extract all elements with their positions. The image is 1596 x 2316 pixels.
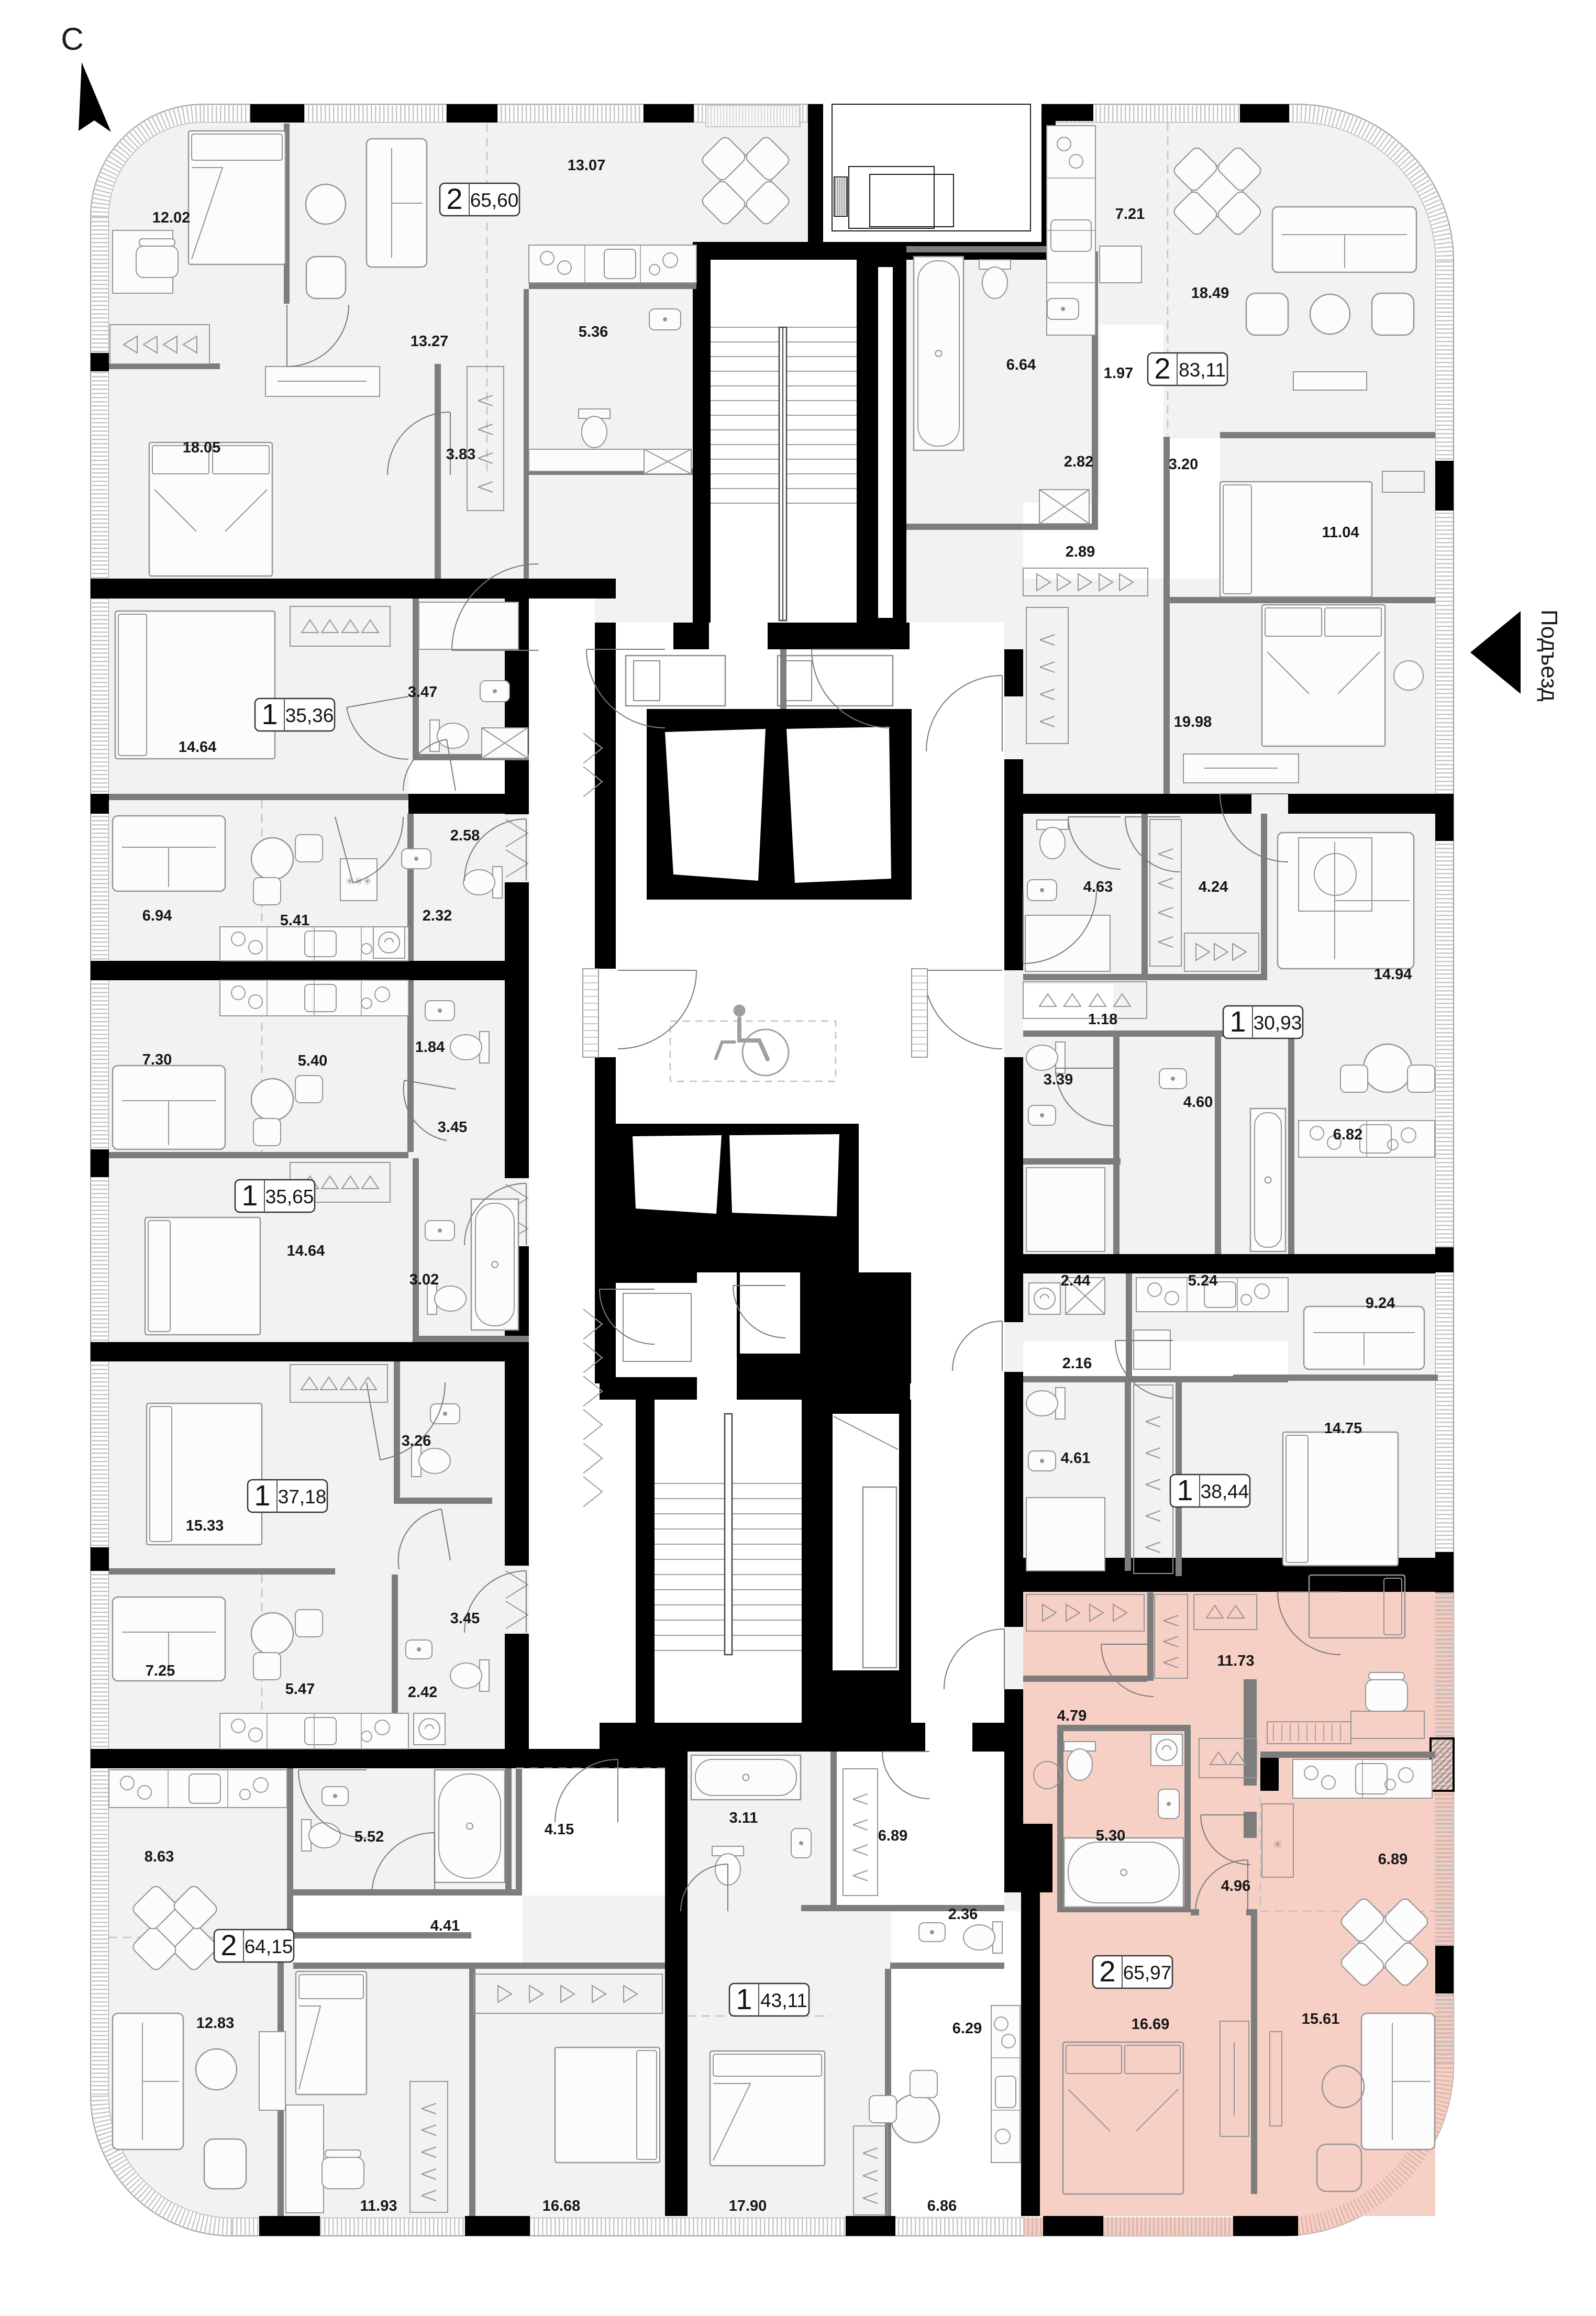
svg-text:12.02: 12.02 — [152, 209, 191, 226]
svg-text:14.75: 14.75 — [1324, 1420, 1362, 1437]
svg-text:5.47: 5.47 — [285, 1681, 315, 1698]
svg-text:Подъезд: Подъезд — [1536, 610, 1562, 702]
svg-text:13.27: 13.27 — [411, 333, 449, 350]
svg-text:1.97: 1.97 — [1104, 365, 1133, 382]
svg-text:4.61: 4.61 — [1061, 1450, 1090, 1467]
svg-text:2: 2 — [220, 1929, 237, 1962]
svg-text:43,11: 43,11 — [760, 1990, 807, 2011]
svg-text:2.36: 2.36 — [948, 1906, 978, 1923]
svg-text:14.64: 14.64 — [179, 739, 217, 756]
svg-text:4.96: 4.96 — [1221, 1878, 1250, 1894]
svg-text:2.42: 2.42 — [408, 1684, 437, 1701]
svg-text:7.30: 7.30 — [142, 1051, 172, 1068]
svg-text:15.33: 15.33 — [186, 1517, 224, 1534]
svg-text:3.45: 3.45 — [438, 1119, 467, 1136]
svg-text:1: 1 — [1177, 1473, 1193, 1506]
svg-text:1: 1 — [261, 697, 278, 730]
svg-text:7.21: 7.21 — [1115, 206, 1145, 223]
svg-text:4.24: 4.24 — [1199, 879, 1228, 895]
svg-text:1.84: 1.84 — [415, 1039, 445, 1056]
svg-text:8.63: 8.63 — [145, 1848, 174, 1865]
svg-text:4.63: 4.63 — [1083, 879, 1113, 895]
svg-text:3.45: 3.45 — [450, 1610, 480, 1627]
svg-text:3.47: 3.47 — [408, 684, 437, 701]
svg-text:35,65: 35,65 — [265, 1186, 314, 1207]
svg-text:✳: ✳ — [1273, 1838, 1282, 1851]
svg-text:16.68: 16.68 — [542, 2198, 581, 2214]
svg-text:4.79: 4.79 — [1057, 1708, 1087, 1724]
svg-text:4.60: 4.60 — [1183, 1094, 1213, 1111]
svg-text:5.36: 5.36 — [579, 324, 608, 340]
svg-text:3.02: 3.02 — [409, 1271, 439, 1288]
svg-text:13.07: 13.07 — [568, 157, 606, 174]
svg-text:16.69: 16.69 — [1132, 2016, 1170, 2033]
svg-text:2: 2 — [1154, 352, 1170, 385]
svg-text:3.83: 3.83 — [446, 446, 475, 463]
svg-text:5.41: 5.41 — [280, 912, 309, 929]
svg-text:2: 2 — [446, 182, 462, 215]
svg-text:9.24: 9.24 — [1366, 1295, 1395, 1312]
svg-text:6.86: 6.86 — [927, 2198, 957, 2214]
svg-text:2.58: 2.58 — [450, 827, 480, 844]
svg-text:65,60: 65,60 — [470, 190, 519, 211]
svg-text:65,97: 65,97 — [1123, 1962, 1172, 1983]
svg-text:6.94: 6.94 — [142, 907, 172, 924]
svg-text:6.64: 6.64 — [1006, 357, 1036, 373]
svg-text:1: 1 — [254, 1479, 270, 1512]
svg-text:7.25: 7.25 — [146, 1663, 175, 1679]
svg-text:2.82: 2.82 — [1064, 453, 1093, 470]
svg-text:4.15: 4.15 — [545, 1821, 574, 1838]
svg-text:15.61: 15.61 — [1302, 2011, 1340, 2027]
svg-text:19.98: 19.98 — [1174, 714, 1212, 730]
svg-text:6.29: 6.29 — [952, 2020, 982, 2037]
svg-text:11.04: 11.04 — [1322, 524, 1359, 541]
svg-text:14.94: 14.94 — [1374, 966, 1412, 983]
svg-text:1.18: 1.18 — [1088, 1011, 1117, 1028]
svg-text:2: 2 — [1099, 1955, 1115, 1988]
svg-text:11.93: 11.93 — [360, 2198, 397, 2214]
svg-text:2.16: 2.16 — [1062, 1355, 1092, 1372]
svg-text:18.05: 18.05 — [183, 439, 221, 456]
svg-text:5.52: 5.52 — [354, 1829, 384, 1845]
svg-text:5.30: 5.30 — [1096, 1827, 1125, 1844]
svg-text:4.41: 4.41 — [430, 1918, 460, 1934]
svg-text:6.89: 6.89 — [1378, 1851, 1407, 1868]
svg-text:5.40: 5.40 — [298, 1052, 327, 1069]
svg-text:1: 1 — [1229, 1005, 1246, 1038]
svg-text:1: 1 — [736, 1982, 752, 2015]
svg-text:2.89: 2.89 — [1066, 544, 1095, 560]
svg-text:3.26: 3.26 — [402, 1433, 431, 1449]
svg-text:6.82: 6.82 — [1333, 1126, 1362, 1143]
svg-text:1: 1 — [241, 1179, 258, 1212]
svg-text:30,93: 30,93 — [1254, 1012, 1302, 1034]
svg-text:11.73: 11.73 — [1217, 1653, 1255, 1669]
svg-text:6.89: 6.89 — [878, 1827, 907, 1844]
svg-text:14.64: 14.64 — [287, 1243, 325, 1259]
svg-text:5.24: 5.24 — [1188, 1272, 1217, 1289]
svg-text:35,36: 35,36 — [285, 705, 334, 726]
svg-text:64,15: 64,15 — [245, 1936, 293, 1957]
svg-text:✳✳✳: ✳✳✳ — [346, 876, 372, 888]
svg-text:38,44: 38,44 — [1201, 1481, 1249, 1502]
svg-text:2.44: 2.44 — [1061, 1272, 1090, 1289]
svg-text:12.83: 12.83 — [196, 2015, 235, 2032]
svg-text:3.11: 3.11 — [729, 1810, 758, 1826]
svg-text:С: С — [61, 21, 83, 57]
svg-text:37,18: 37,18 — [278, 1486, 327, 1508]
svg-text:3.39: 3.39 — [1044, 1071, 1073, 1088]
svg-text:17.90: 17.90 — [729, 2198, 767, 2214]
svg-text:2.32: 2.32 — [423, 907, 452, 924]
svg-text:18.49: 18.49 — [1191, 285, 1229, 302]
svg-text:3.20: 3.20 — [1169, 456, 1198, 473]
svg-text:83,11: 83,11 — [1179, 359, 1226, 381]
